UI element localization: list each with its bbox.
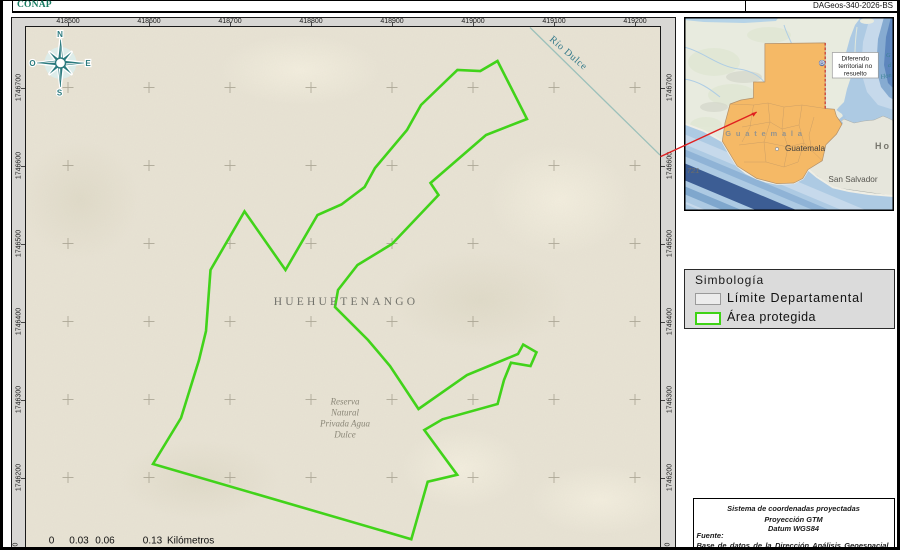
svg-text:Privada Agua: Privada Agua [319,419,371,429]
svg-text:Guatemala: Guatemala [785,144,825,153]
svg-text:B: B [820,61,824,67]
svg-text:G: G [886,52,891,59]
svg-text:0.06: 0.06 [95,536,115,547]
svg-text:resuelto: resuelto [844,71,867,78]
svg-text:721: 721 [687,166,700,175]
svg-text:Kilómetros: Kilómetros [167,536,214,547]
svg-text:Natural: Natural [330,408,360,418]
svg-text:Ho: Ho [875,141,891,151]
svg-text:Diferendo: Diferendo [841,56,869,63]
svg-text:N: N [57,30,63,39]
svg-text:Reserva: Reserva [330,397,360,407]
svg-text:0.13: 0.13 [143,536,163,547]
svg-text:E: E [85,59,91,68]
svg-text:San Salvador: San Salvador [828,175,877,184]
svg-text:0.03: 0.03 [69,536,89,547]
svg-text:0: 0 [49,536,55,547]
svg-text:Dulce: Dulce [333,430,356,440]
svg-text:HUEHUETENANGO: HUEHUETENANGO [274,296,418,308]
svg-text:O: O [29,59,35,68]
svg-text:territorial no: territorial no [838,63,872,70]
svg-text:S: S [57,89,63,98]
